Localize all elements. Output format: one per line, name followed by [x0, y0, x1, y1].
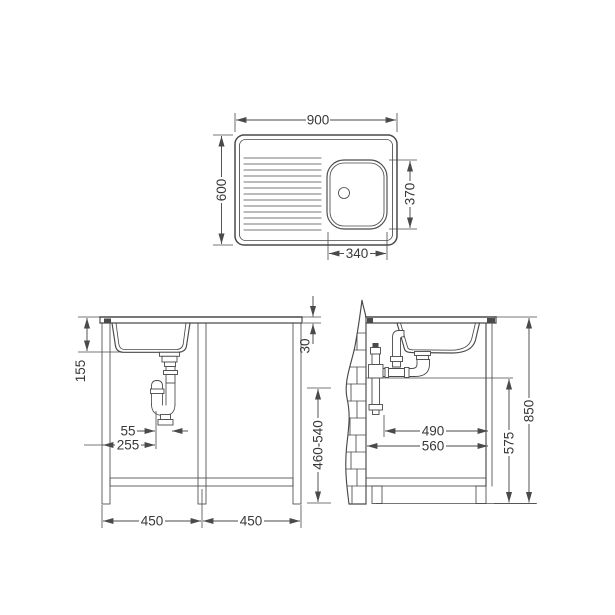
sink-rim-clip [104, 319, 111, 324]
dim-label-trap-from-left: 255 [117, 438, 140, 453]
dim-label-outlet-height-range: 460-540 [311, 420, 326, 470]
siphon-trap [151, 352, 180, 425]
front-view: 155 30 55 255 450 [73, 296, 321, 529]
front-rim-clip [487, 318, 495, 324]
dim-label-right-unit-width: 450 [240, 514, 263, 529]
dim-unit-depth: 560 [367, 439, 488, 454]
drain-hole-icon [339, 188, 350, 199]
dim-trap-from-left: 255 [84, 438, 155, 453]
dim-bowl-depth: 370 [389, 160, 418, 229]
dim-label-worktop-height: 850 [522, 400, 537, 423]
dim-label-left-unit-width: 450 [141, 514, 164, 529]
standpipe [369, 343, 384, 415]
brick-pattern [340, 333, 366, 503]
dim-label-bowl-depth: 370 [403, 183, 418, 206]
dim-label-overall-depth: 600 [214, 179, 229, 202]
dim-right-unit-width: 450 [203, 505, 301, 529]
drawing-canvas: 900 600 370 340 [0, 0, 615, 615]
dim-clear-depth: 490 [384, 415, 488, 439]
basin-top [327, 160, 387, 229]
dim-label-bowl-height: 155 [73, 360, 88, 383]
sink-technical-drawing: 900 600 370 340 [0, 0, 615, 615]
drain-plumbing-side [369, 331, 431, 415]
dim-label-clear-depth: 490 [422, 424, 445, 439]
valve-cap [373, 343, 379, 348]
cabinet-front-panel [486, 324, 492, 486]
basin-side [397, 323, 480, 353]
cabinet-bottom-shelf [110, 478, 293, 486]
dim-overall-width: 900 [235, 113, 397, 133]
dim-label-trap-offset: 55 [120, 424, 135, 439]
cabinet-left-side [102, 323, 110, 504]
dim-front-height: 575 [494, 379, 537, 504]
dim-label-worktop-thickness: 30 [298, 338, 313, 353]
dim-overall-depth: 600 [213, 135, 233, 245]
dim-worktop-height: 850 [492, 317, 537, 503]
dim-label-unit-depth: 560 [422, 439, 445, 454]
dim-bowl-width: 340 [328, 232, 387, 261]
dim-bowl-height: 155 [73, 317, 122, 382]
dim-label-overall-width: 900 [307, 113, 330, 128]
cabinet-partition [198, 323, 206, 504]
rear-plinth-leg [372, 486, 382, 504]
wall-section [340, 300, 366, 504]
basin-front [112, 323, 190, 352]
rear-rim-clip [367, 318, 373, 323]
dim-label-front-height: 575 [502, 432, 517, 455]
front-plinth-leg [476, 486, 486, 504]
dim-label-bowl-width: 340 [346, 246, 369, 261]
dim-left-unit-width: 450 [102, 489, 202, 529]
top-view: 900 600 370 340 [213, 113, 418, 262]
drainboard-ribs [244, 158, 321, 230]
side-view: 460-540 490 560 575 850 [307, 300, 537, 504]
side-bottom-shelf [366, 478, 486, 486]
worktop-front [100, 317, 302, 324]
worktop-side [366, 317, 496, 324]
dim-outlet-height-range: 460-540 [307, 388, 331, 503]
